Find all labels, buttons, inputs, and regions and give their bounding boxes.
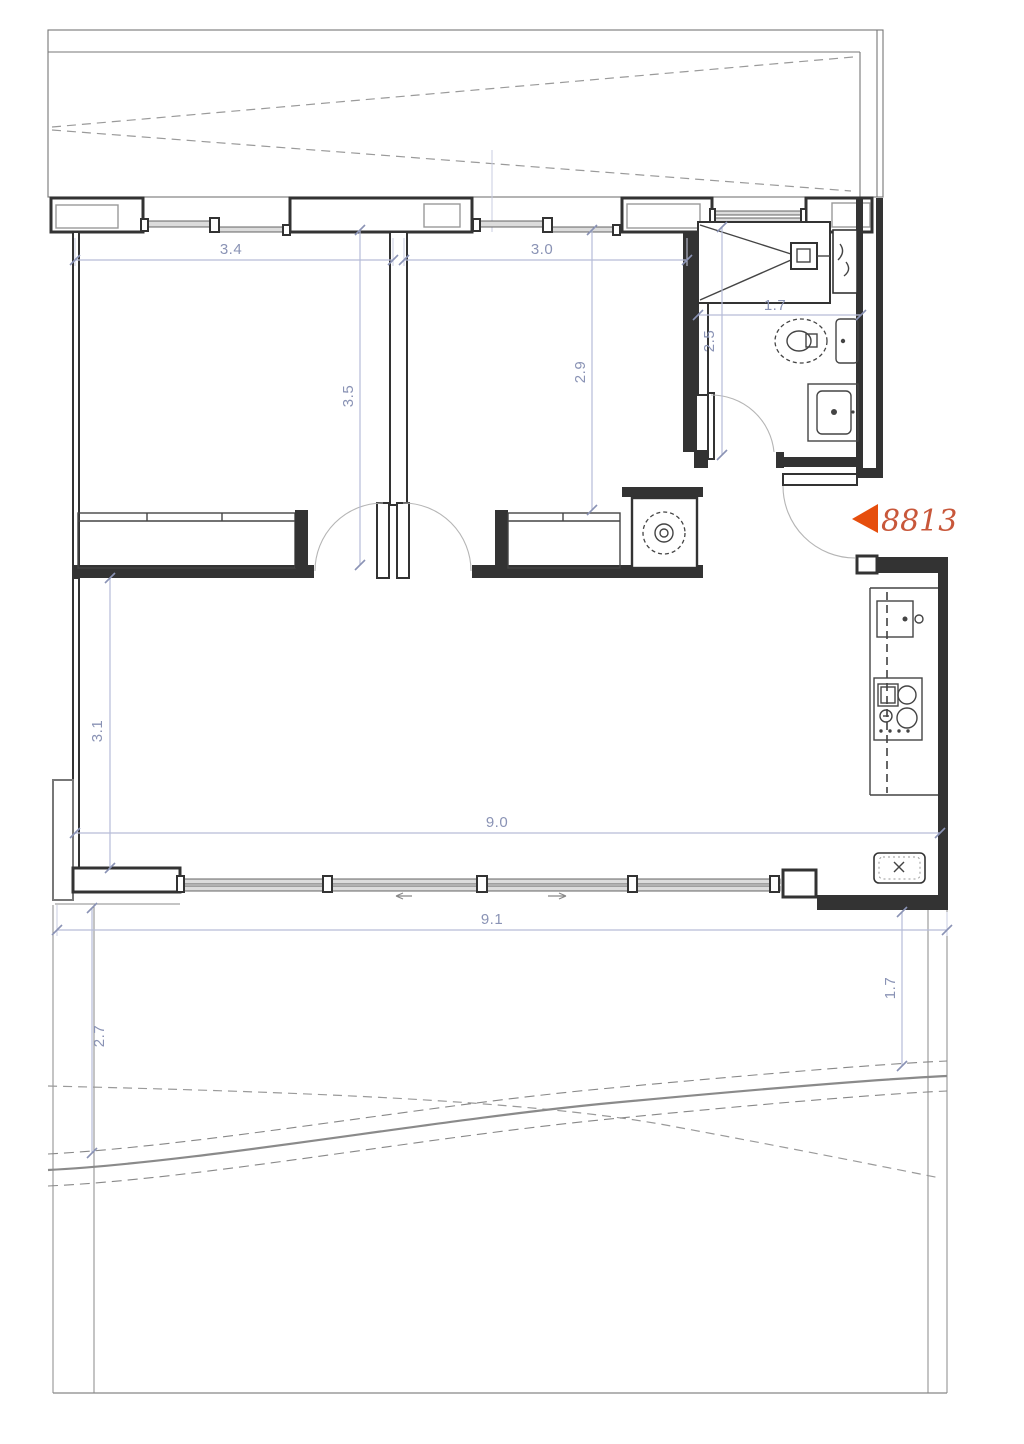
bathroom-bottom-wall: [783, 457, 860, 467]
bedroom1-closet: [78, 510, 308, 568]
door-leaf: [397, 503, 409, 578]
shower: [698, 222, 830, 303]
right-exterior-wall: [856, 198, 883, 478]
dim-living-width: 9.0: [486, 814, 508, 831]
dimensions: 3.4 3.0 1.7 3.5 2.9 2.5 3.1 9.0: [52, 222, 952, 1158]
bedrooms-dividing-wall: [390, 232, 407, 505]
dim-terrace-depth-right: 1.7: [882, 977, 899, 999]
roof-outline: [48, 30, 883, 197]
bathroom-sink: [808, 384, 858, 441]
door-leaf: [708, 393, 714, 459]
dim-bedroom1-width: 3.4: [220, 241, 242, 258]
dim-bedroom1-depth: 3.5: [340, 385, 357, 407]
floor-plan-page: 8813: [0, 0, 1024, 1444]
dim-living-depth: 3.1: [89, 720, 106, 742]
door-swing-arc: [315, 503, 383, 571]
toilet-cistern: [836, 319, 858, 363]
toilet: [775, 319, 858, 363]
bedroom2-closet: [495, 510, 620, 568]
lintel-box: [56, 205, 118, 228]
dim-plot-width: 9.1: [481, 911, 503, 928]
column: [783, 870, 816, 897]
corner-wall: [73, 868, 180, 892]
dim-bathroom-depth: 2.5: [701, 330, 718, 352]
kitchen-bottom-wall: [817, 895, 948, 910]
roof-slope-line-upper: [52, 57, 853, 127]
path-band: [48, 1061, 947, 1186]
bedroom1-window: [141, 218, 290, 235]
cooktop: [874, 678, 922, 740]
kitchen-sink: [874, 853, 925, 883]
bedroom2-door: [397, 503, 471, 578]
bedroom1-door: [315, 503, 389, 578]
water-heater: [632, 498, 697, 568]
lintel-box: [424, 204, 460, 227]
kitchen-appliance: [877, 601, 923, 637]
door-swing-arc: [783, 486, 855, 558]
dim-terrace-depth-left: 2.7: [91, 1025, 108, 1047]
lintel-box: [627, 204, 700, 228]
slide-direction-arrow-right: [548, 893, 566, 899]
entry-door: [783, 474, 857, 558]
roof-slope-line-lower: [52, 130, 851, 191]
living-room-bottom: [53, 780, 816, 904]
door-swing-arc: [403, 503, 471, 571]
dim-bedroom2-depth: 2.9: [572, 361, 589, 383]
bathroom-window: [710, 209, 806, 223]
interior-walls: [73, 232, 860, 868]
marker-triangle-icon: [852, 504, 878, 533]
door-swing-arc: [711, 395, 774, 452]
bathroom-door: [708, 393, 774, 459]
plot-bottom: [48, 905, 947, 1393]
bedroom1-bottom-wall: [73, 565, 314, 578]
shower-glass-panel: [833, 230, 857, 293]
sliding-glass-door: [177, 876, 780, 899]
floor-plan-drawing: 8813: [0, 0, 1024, 1444]
bedroom2-window: [473, 218, 620, 235]
kitchen-right-wall: [938, 573, 948, 895]
dim-bedroom2-width: 3.0: [531, 241, 553, 258]
marker-label: 8813: [881, 504, 957, 539]
shower-drain: [791, 243, 817, 269]
listing-marker[interactable]: 8813: [852, 504, 957, 539]
kitchen: [817, 556, 948, 910]
terrace-pillar: [53, 780, 73, 900]
door-leaf: [377, 503, 389, 578]
door-leaf: [783, 474, 857, 485]
bedroom2-right-wall: [683, 232, 697, 452]
boiler-niche-top-wall: [622, 487, 703, 497]
lintel-box: [832, 203, 870, 227]
dim-bathroom-width: 1.7: [764, 297, 786, 314]
slide-direction-arrow-left: [396, 893, 412, 899]
